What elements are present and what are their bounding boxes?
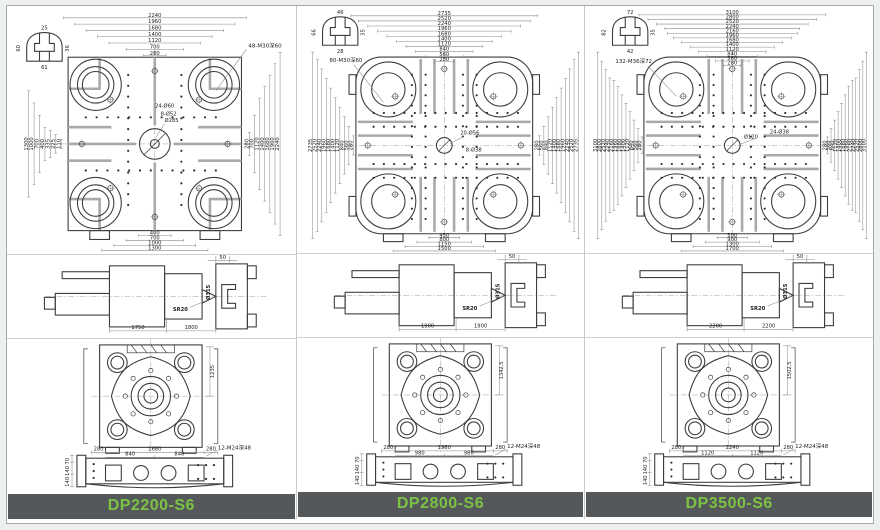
- dim-label: 70: [65, 458, 71, 465]
- rear-view: 1502.5: [662, 338, 796, 452]
- dim-label: 2735: [573, 139, 579, 152]
- dim-label: 1800: [185, 325, 198, 331]
- dim-label: SR20: [462, 306, 477, 312]
- model-label-bar: DP3500-S6: [586, 492, 872, 517]
- rear-view-dp2800: 1342.5 280 1960 280 980 980 12-M24深48 70…: [297, 338, 585, 492]
- dim-label: 1900: [474, 324, 487, 330]
- dim-label: 1680: [148, 26, 161, 32]
- machine-panel-dp2200: 22401960168014001120700280 4007001000130…: [7, 6, 296, 519]
- dim-chain-bottom: 40070010001300: [102, 231, 208, 252]
- rear-view: 1342.5: [373, 338, 507, 452]
- tslot-detail: 25 60 61 36: [16, 26, 71, 71]
- side-view: 50 Ø315 SR20 2200 2200: [623, 254, 846, 332]
- dim-label: 980: [414, 450, 424, 456]
- model-name: DP2800-S6: [397, 495, 484, 512]
- dim-label: 1500: [437, 246, 450, 252]
- dim-label: 50: [219, 255, 226, 261]
- thread-callout: 12-M24深48: [507, 442, 541, 450]
- dim-label: 1235: [210, 365, 216, 378]
- dim-label: 46: [337, 10, 344, 16]
- dim-stack-left: 3100280025202240216019601680140011208405…: [593, 52, 644, 239]
- hole-callout: 24-Ø38: [770, 129, 789, 136]
- dim-stack-top: 2735252022401960168014001120840560280: [351, 11, 538, 63]
- dim-label: 1342.5: [499, 361, 505, 379]
- dim-label: 1120: [701, 450, 714, 456]
- side-view: 50 Ø315 SR20 1750 1800: [44, 255, 268, 333]
- model-label-bar: DP2200-S6: [8, 494, 295, 519]
- dim-label: 42: [627, 49, 634, 55]
- hole-callout: 8-Ø52: [161, 110, 177, 117]
- dim-label: 280: [94, 446, 104, 452]
- dim-label: 2240: [726, 445, 739, 451]
- dim-stack-left: 13001000700400335225110: [24, 91, 63, 197]
- dim-label: 140: [643, 475, 649, 485]
- dim-label: 25: [41, 26, 48, 32]
- dim-label: SR20: [173, 307, 188, 313]
- dim-label: 1502.5: [787, 361, 793, 379]
- dim-label: 2240: [275, 137, 281, 150]
- dim-label: 840: [174, 452, 184, 458]
- dim-stack-right: 2805608401120140016801960224025202735: [534, 52, 579, 239]
- rear-view-dp3500: 1502.5 280 2240 280 1120 1120 12-M24深48 …: [585, 338, 873, 492]
- rear-view-dp2200: 1235 280 1680 280 840 840 12-M24深48 70 1…: [7, 339, 296, 494]
- dim-label: 140: [355, 464, 361, 474]
- platen: [636, 49, 828, 241]
- hole-callout: 24-Ø60: [155, 102, 174, 109]
- base-detail: 280 1960 280 980 980 12-M24深48 70 140 14…: [355, 442, 541, 486]
- dim-label: 280: [784, 445, 794, 451]
- machine-panel-dp2800: 2735252022401960168014001120840560280 45…: [296, 6, 585, 519]
- dim-label: 140: [355, 475, 361, 485]
- dim-label: 1400: [148, 32, 161, 38]
- thread-callout: 132-M36深72: [616, 57, 653, 65]
- dim-label: 980: [464, 450, 474, 456]
- dim-stack-left: 2735252022401960168014001120840560280: [307, 52, 354, 239]
- dim-label: 280: [439, 57, 449, 63]
- model-label-bar: DP2800-S6: [298, 492, 584, 517]
- dim-stack-top: 3100280025202240216019601680140011208405…: [639, 10, 826, 67]
- dim-label: 840: [125, 452, 135, 458]
- dim-label: 2240: [148, 13, 161, 19]
- dim-label: 1900: [421, 324, 434, 330]
- dim-stack-right: 2805608401120140016801960216022402520280…: [823, 52, 868, 239]
- side-view-dp2200: 50 Ø315 SR20 1750 1800: [7, 255, 296, 339]
- dim-label: 61: [41, 65, 48, 71]
- dim-label: Ø315: [494, 284, 501, 300]
- dim-label: 1120: [148, 38, 161, 44]
- side-view-dp2800: 50 Ø315 SR20 1900 1900: [297, 254, 585, 337]
- tslot-detail: 72 82 42 35: [602, 10, 657, 55]
- platen: [60, 49, 249, 239]
- dim-label: 140: [65, 477, 71, 487]
- dim-label: 1120: [751, 450, 764, 456]
- dim-label: 1700: [726, 246, 739, 252]
- thread-callout: 12-M24深48: [795, 442, 829, 450]
- dim-label: 1750: [131, 325, 144, 331]
- dim-label: 50: [508, 254, 515, 260]
- thread-callout: 80-M30深60: [329, 56, 363, 64]
- dim-label: 280: [150, 51, 160, 57]
- side-view-dp3500: 50 Ø315 SR20 2200 2200: [585, 254, 873, 337]
- dim-label: 36: [65, 45, 71, 52]
- top-view-dp2800: 2735252022401960168014001120840560280 45…: [297, 6, 585, 254]
- top-view-dp3500: 3100280025202240216019601680140011208405…: [585, 6, 873, 254]
- dim-label: 35: [651, 29, 657, 36]
- dim-label: 50: [797, 254, 804, 260]
- rear-view: 1235: [84, 339, 218, 453]
- side-view: 50 Ø315 SR20 1900 1900: [334, 254, 557, 332]
- hole-callout: Ø120: [744, 134, 758, 141]
- model-name: DP2200-S6: [108, 497, 195, 514]
- hole-callout: Ø285: [164, 117, 178, 124]
- thread-callout: 48-M30深60: [248, 41, 282, 49]
- hole-callout: 8-Ø38: [465, 146, 481, 153]
- dim-label: 1960: [148, 19, 161, 25]
- sheet-frame: 22401960168014001120700280 4007001000130…: [6, 5, 874, 524]
- dim-label: Ø315: [205, 285, 212, 301]
- dim-label: 70: [355, 456, 361, 463]
- dim-label: 35: [360, 29, 366, 36]
- tslot-detail: 46 66 28 35: [311, 10, 366, 55]
- thread-callout: 12-M24深48: [218, 443, 252, 451]
- dim-label: 2200: [762, 324, 775, 330]
- model-name: DP3500-S6: [686, 495, 773, 512]
- dim-label: 3100: [862, 139, 868, 152]
- dim-label: 280: [383, 445, 393, 451]
- dim-label: 82: [602, 29, 608, 36]
- dim-label: 1960: [437, 445, 450, 451]
- machine-columns: 22401960168014001120700280 4007001000130…: [7, 6, 873, 519]
- dim-label: 1680: [148, 446, 161, 452]
- dim-chain-bottom: 45080011501500: [393, 233, 495, 253]
- dim-stack-top: 22401960168014001120700280: [63, 13, 246, 57]
- top-view-dp2200: 22401960168014001120700280 4007001000130…: [7, 6, 296, 255]
- dim-label: 66: [311, 29, 317, 36]
- hole-callout: 20-Ø56: [460, 130, 479, 137]
- dim-label: 280: [637, 140, 643, 150]
- base-detail: 280 2240 280 1120 1120 12-M24深48 70 140 …: [643, 442, 829, 486]
- dim-label: 140: [65, 466, 71, 476]
- dim-label: SR20: [751, 306, 766, 312]
- dim-label: Ø315: [783, 284, 790, 300]
- dim-label: 70: [643, 456, 649, 463]
- dim-label: 280: [728, 61, 738, 67]
- dim-label: 280: [672, 445, 682, 451]
- dim-label: 280: [495, 445, 505, 451]
- dim-label: 28: [337, 49, 344, 55]
- dim-label: 1300: [148, 245, 161, 251]
- dim-label: 280: [206, 446, 216, 452]
- dim-chain-bottom: 50090013001700: [681, 233, 783, 253]
- dim-stack-right: 28070011201400168019602240: [244, 52, 281, 235]
- dim-label: 72: [627, 10, 634, 16]
- platen: [348, 49, 540, 241]
- dim-label: 60: [16, 45, 22, 52]
- dim-label: 700: [150, 44, 160, 50]
- dim-label: 280: [348, 140, 354, 150]
- base-detail: 280 1680 280 840 840 12-M24深48 70 140 14…: [65, 443, 251, 487]
- dim-label: 2200: [709, 324, 722, 330]
- dim-label: 110: [56, 139, 62, 149]
- machine-panel-dp3500: 3100280025202240216019601680140011208405…: [584, 6, 873, 519]
- dim-label: 140: [643, 464, 649, 474]
